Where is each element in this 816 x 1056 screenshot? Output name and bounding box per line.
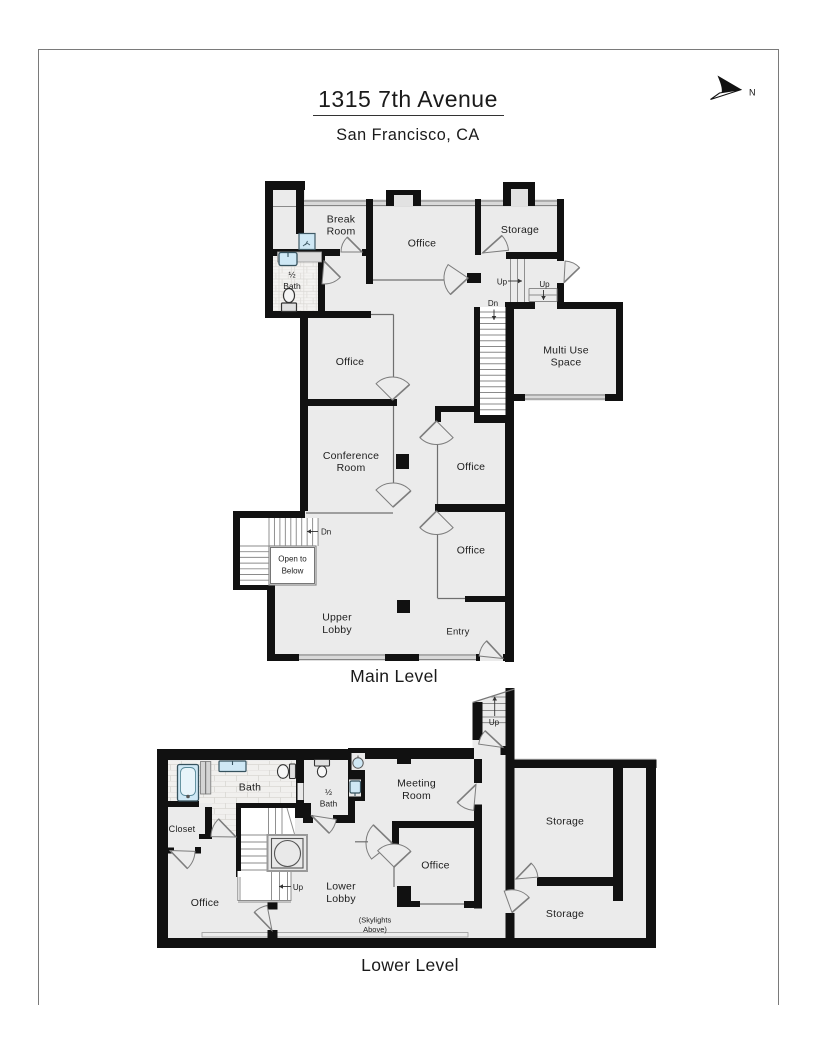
svg-text:Storage: Storage: [546, 908, 584, 920]
svg-text:(Skylights: (Skylights: [359, 916, 392, 925]
svg-text:Storage: Storage: [501, 224, 539, 236]
svg-text:Multi Use: Multi Use: [543, 345, 589, 357]
svg-text:Bath: Bath: [239, 782, 261, 794]
svg-text:Office: Office: [408, 238, 436, 250]
svg-text:Conference: Conference: [323, 450, 379, 462]
svg-text:Room: Room: [327, 226, 356, 238]
svg-text:Office: Office: [336, 356, 364, 368]
svg-text:Below: Below: [282, 567, 304, 576]
svg-text:N: N: [749, 88, 756, 98]
svg-text:Bath: Bath: [283, 281, 301, 291]
svg-text:Up: Up: [497, 278, 508, 287]
svg-text:Dn: Dn: [488, 299, 498, 308]
svg-text:Bath: Bath: [320, 799, 338, 809]
svg-text:Up: Up: [293, 883, 304, 892]
svg-text:Office: Office: [457, 545, 485, 557]
svg-text:Storage: Storage: [546, 816, 584, 828]
svg-text:Up: Up: [539, 280, 550, 289]
svg-text:Office: Office: [421, 860, 449, 872]
svg-text:Open to: Open to: [278, 555, 307, 564]
svg-text:Dn: Dn: [321, 528, 331, 537]
svg-text:Closet: Closet: [169, 824, 196, 834]
svg-text:Entry: Entry: [446, 627, 469, 638]
svg-text:Office: Office: [191, 897, 219, 909]
svg-text:Lobby: Lobby: [326, 893, 356, 905]
svg-text:Break: Break: [327, 214, 356, 226]
svg-text:½: ½: [288, 270, 295, 280]
svg-text:Main Level: Main Level: [350, 666, 438, 686]
svg-text:Lower Level: Lower Level: [361, 955, 459, 975]
svg-text:Space: Space: [551, 357, 582, 369]
svg-text:Office: Office: [457, 461, 485, 473]
svg-text:Room: Room: [337, 462, 366, 474]
svg-text:Upper: Upper: [322, 612, 352, 624]
svg-text:Meeting: Meeting: [397, 778, 436, 790]
svg-text:Above): Above): [363, 925, 387, 934]
svg-text:1315 7th Avenue: 1315 7th Avenue: [318, 86, 498, 112]
svg-text:Up: Up: [489, 718, 500, 727]
svg-text:Lower: Lower: [326, 881, 356, 893]
svg-text:Lobby: Lobby: [322, 624, 352, 636]
svg-text:Room: Room: [402, 790, 431, 802]
svg-text:San Francisco, CA: San Francisco, CA: [336, 126, 479, 144]
svg-text:½: ½: [325, 787, 332, 797]
